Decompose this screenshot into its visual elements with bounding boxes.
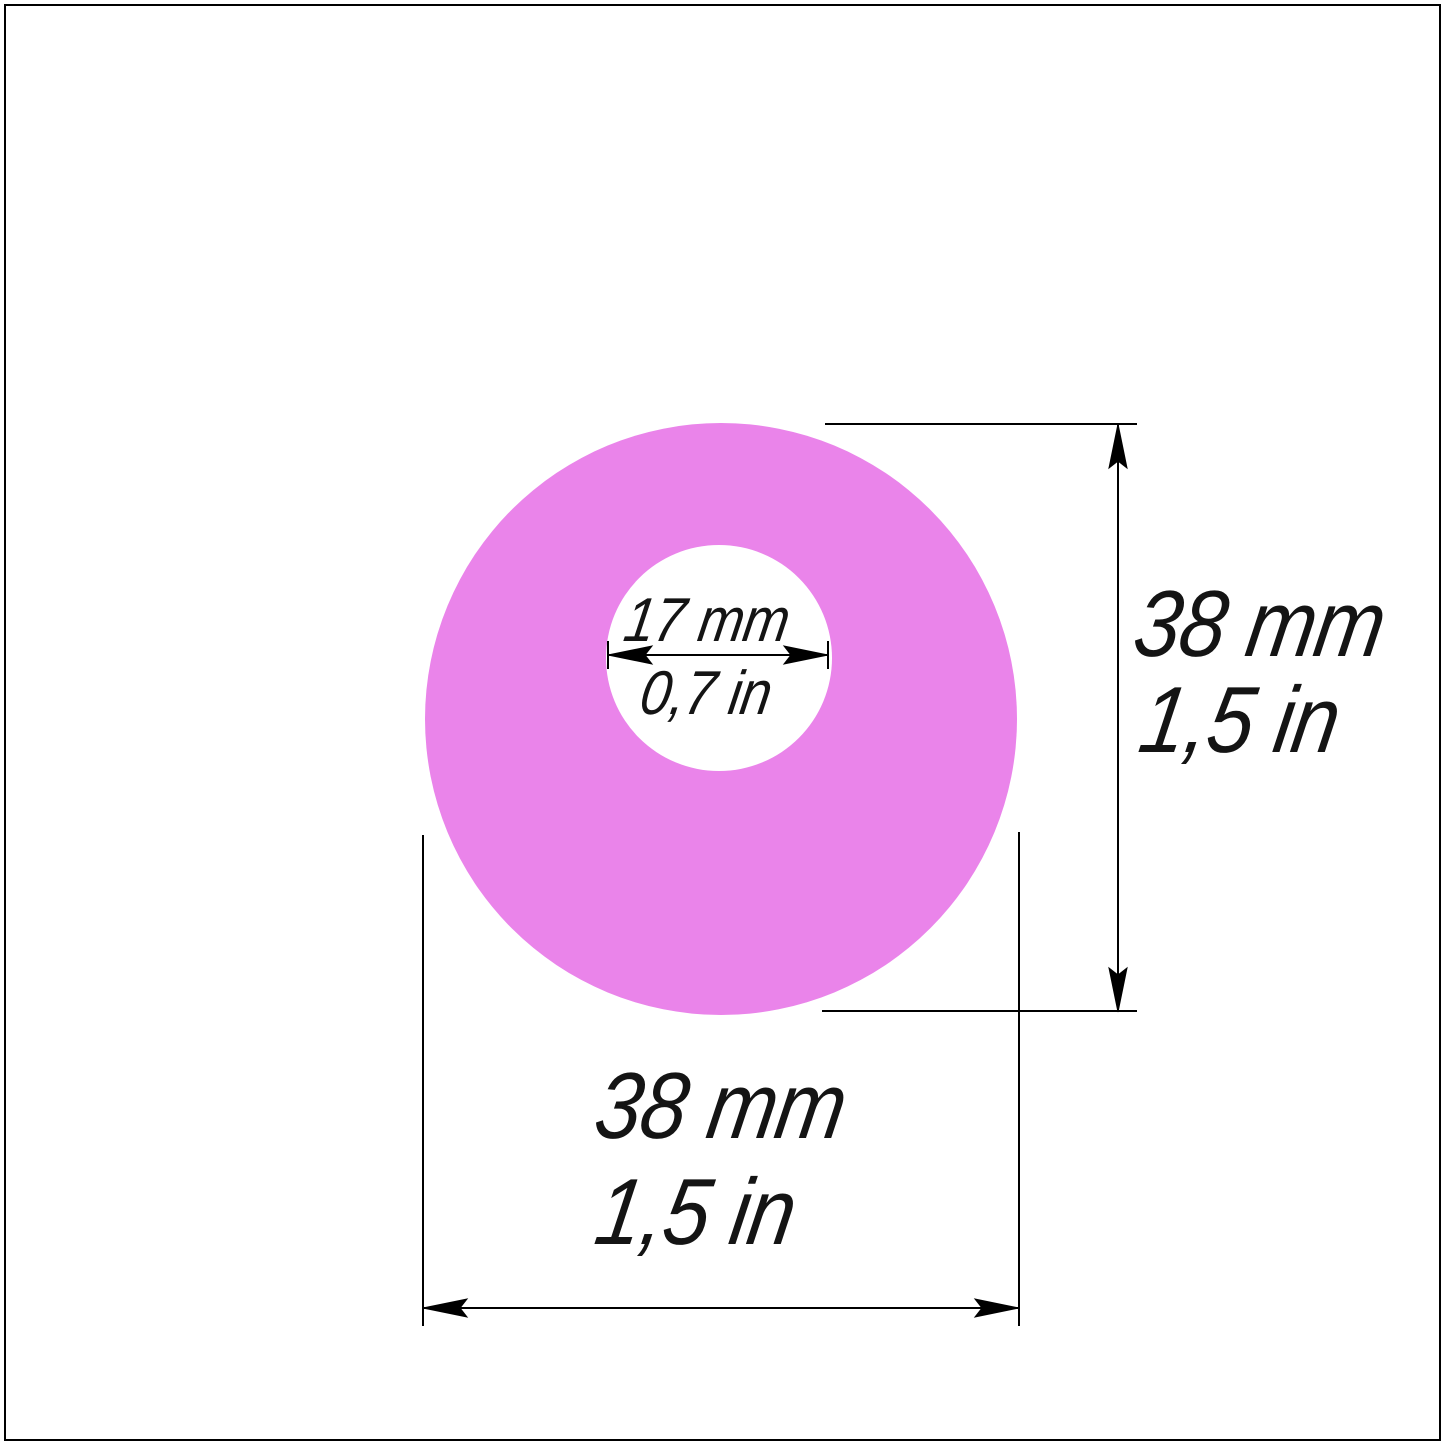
- arrow-up-icon: [1109, 424, 1127, 468]
- inner-diameter-label-inch: 0,7 in: [636, 663, 776, 725]
- arrow-left-icon: [423, 1299, 467, 1317]
- horizontal-diameter-label-inch: 1,5 in: [590, 1165, 802, 1259]
- inner-diameter-label-mm: 17 mm: [620, 590, 794, 652]
- horizontal-diameter-label-mm: 38 mm: [589, 1059, 853, 1153]
- technical-drawing: 17 mm 0,7 in 38 mm 1,5 in 38 mm 1,5 in: [0, 0, 1445, 1445]
- arrow-right-icon: [975, 1299, 1019, 1317]
- vertical-diameter-label-inch: 1,5 in: [1134, 673, 1346, 767]
- vertical-diameter-label-mm: 38 mm: [1128, 577, 1392, 671]
- arrow-down-icon: [1109, 968, 1127, 1012]
